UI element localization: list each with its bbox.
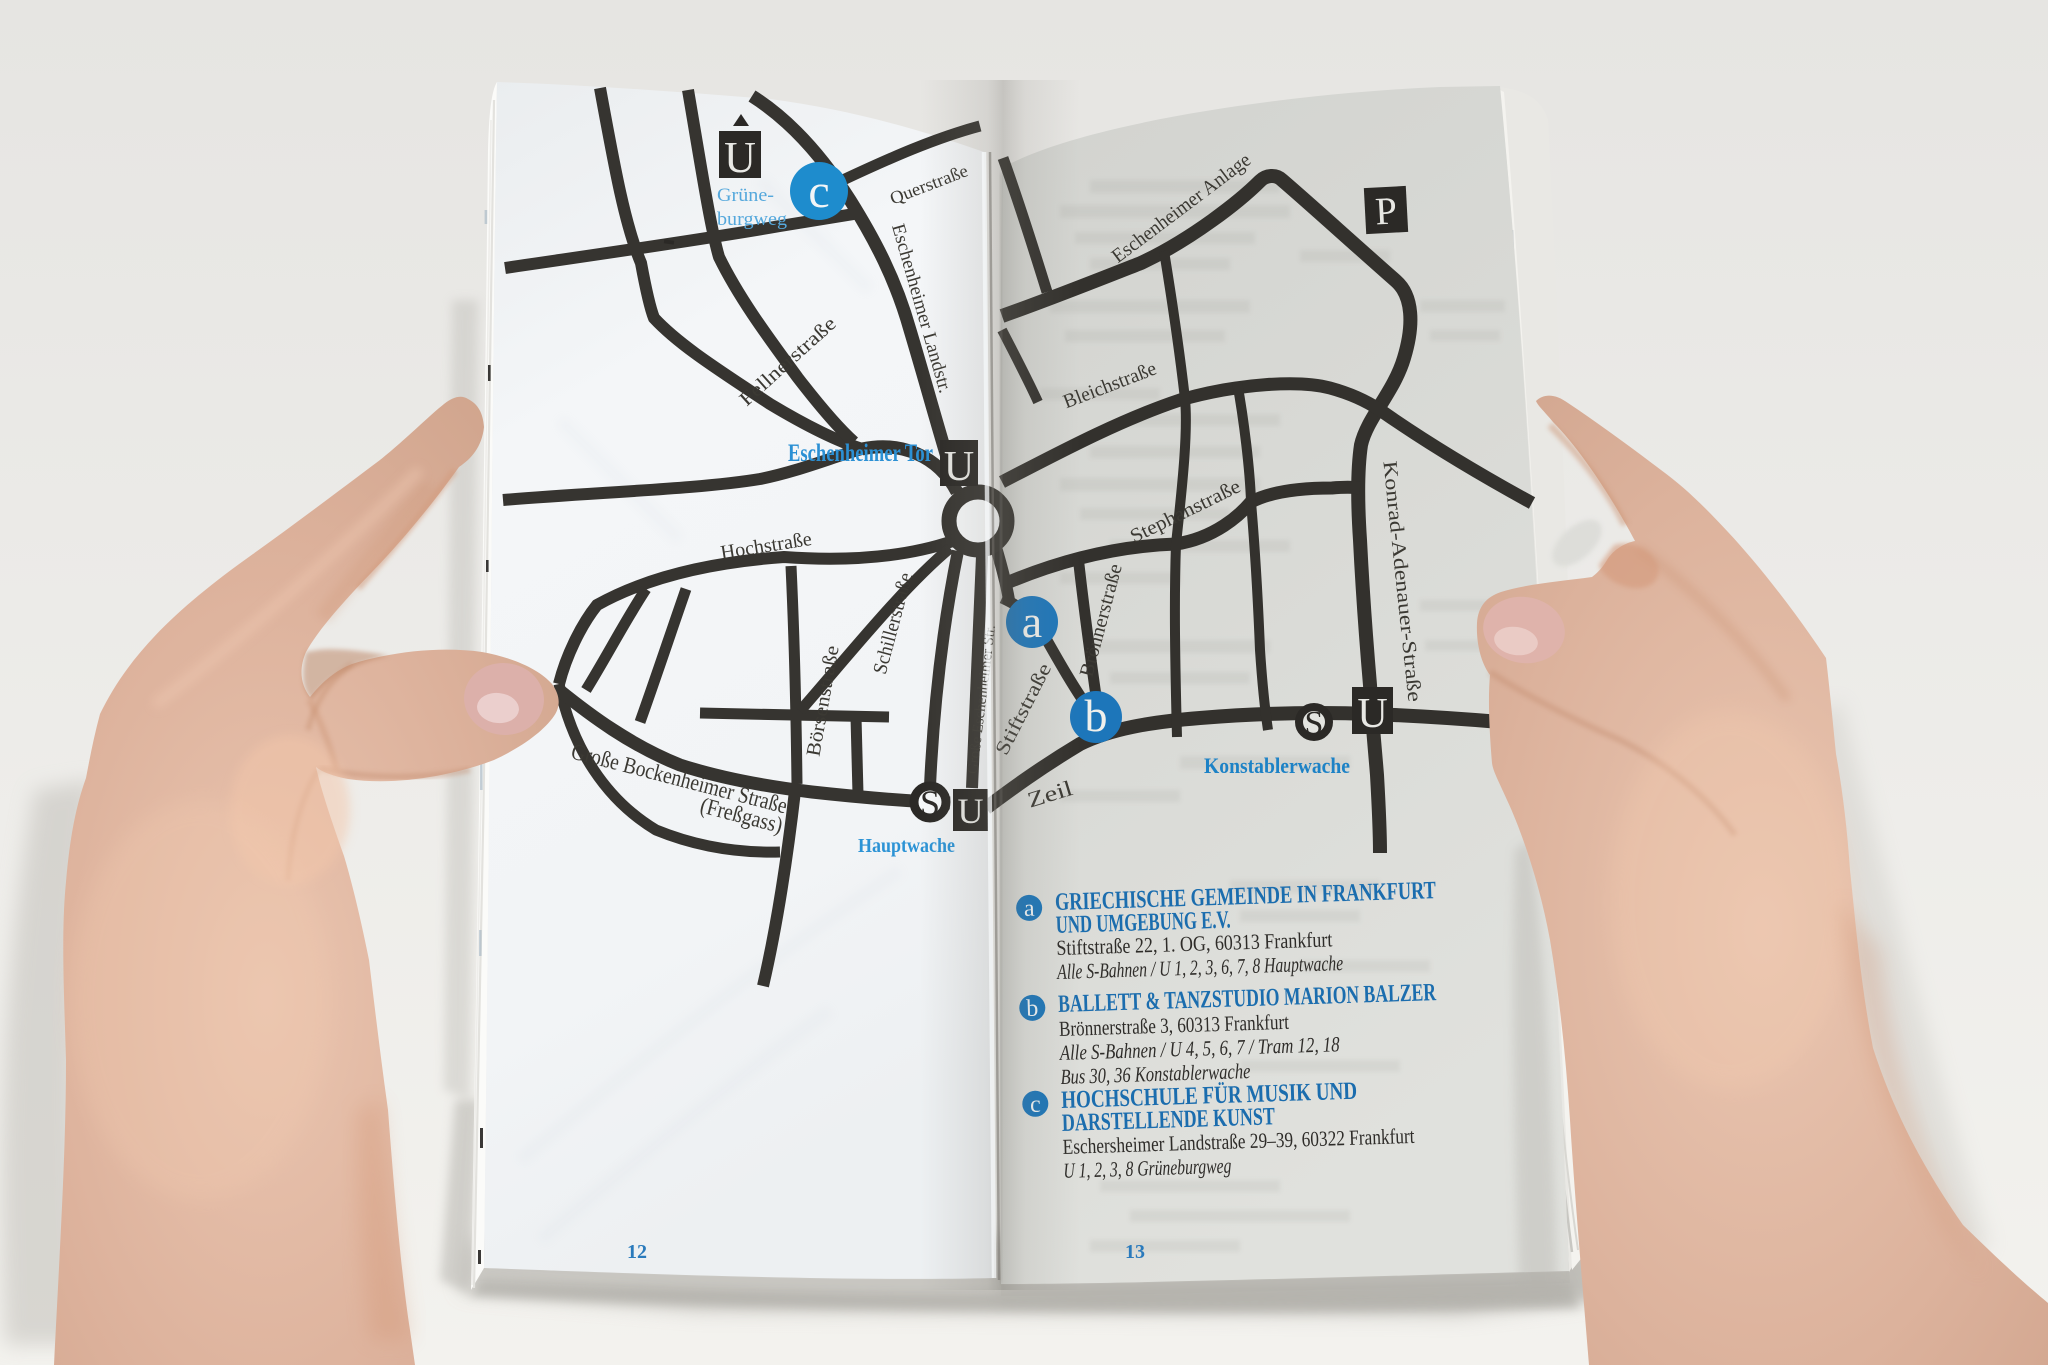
- svg-text:burgweg: burgweg: [717, 209, 788, 230]
- svg-text:c: c: [808, 165, 829, 218]
- svg-text:b: b: [1085, 690, 1108, 741]
- svg-text:Eschenheimer Tor: Eschenheimer Tor: [788, 440, 933, 467]
- svg-text:U: U: [1357, 691, 1387, 737]
- svg-text:S: S: [1305, 705, 1324, 742]
- svg-text:Grüne-: Grüne-: [717, 185, 774, 206]
- svg-text:12: 12: [627, 1241, 647, 1263]
- svg-text:Konstablerwache: Konstablerwache: [1204, 753, 1350, 778]
- svg-text:13: 13: [1125, 1241, 1145, 1263]
- svg-text:U: U: [724, 133, 756, 182]
- svg-text:P: P: [1374, 189, 1398, 233]
